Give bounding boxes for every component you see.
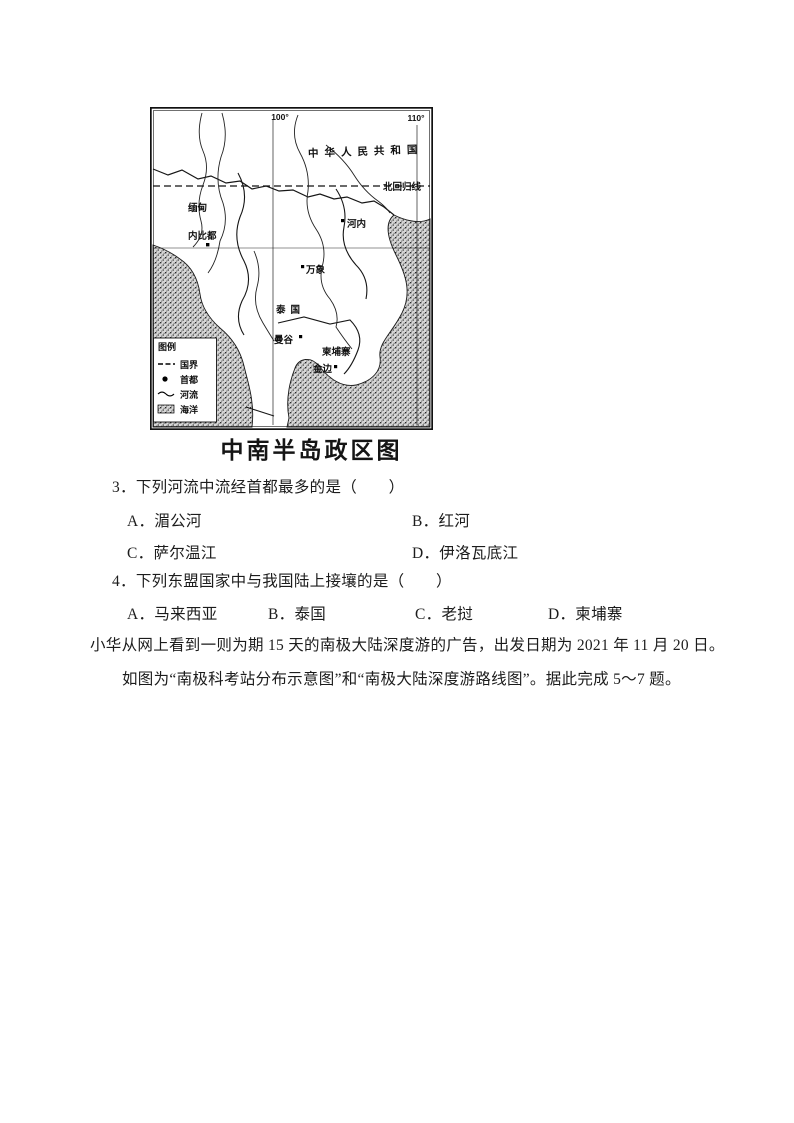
map-legend: 图例 国界 首都 河流 海洋 — [154, 338, 217, 422]
legend-sea-label: 海洋 — [180, 404, 198, 415]
naypyidaw-label: 内比都 — [188, 230, 217, 242]
question-3-option-a: A．湄公河 — [127, 513, 202, 531]
passage-line-2: 如图为“南极科考站分布示意图”和“南极大陆深度游路线图”。据此完成 5～7 题。 — [122, 671, 681, 689]
question-4-option-a: A．马来西亚 — [127, 606, 218, 624]
document-page: 100° 110° 中华人民共和国 北回归线 缅甸 泰国 柬埔寨 内比都 河内 … — [0, 0, 794, 1123]
thailand-label: 泰国 — [275, 304, 305, 316]
hanoi-label: 河内 — [347, 218, 366, 230]
question-4-option-c: C．老挝 — [415, 606, 473, 624]
hanoi-dot — [341, 219, 344, 222]
legend-title: 图例 — [158, 341, 176, 352]
vientiane-label: 万象 — [305, 264, 326, 276]
legend-river-label: 河流 — [180, 389, 198, 400]
bangkok-dot — [299, 335, 302, 338]
legend-capital-symbol — [162, 376, 167, 381]
legend-boundary-label: 国界 — [180, 360, 198, 370]
lon-110-label: 110° — [407, 113, 425, 123]
phnom-penh-label: 金边 — [312, 363, 333, 375]
question-3-option-d: D．伊洛瓦底江 — [412, 545, 518, 563]
passage-line-1: 小华从网上看到一则为期 15 天的南极大陆深度游的广告，出发日期为 2021 年… — [90, 637, 725, 655]
vientiane-dot — [301, 265, 304, 268]
question-4-option-d: D．柬埔寨 — [548, 606, 623, 624]
tropic-of-cancer-label: 北回归线 — [383, 181, 422, 193]
indochina-map: 100° 110° 中华人民共和国 北回归线 缅甸 泰国 柬埔寨 内比都 河内 … — [150, 107, 433, 430]
legend-sea-symbol — [158, 405, 174, 413]
naypyidaw-dot — [206, 243, 209, 246]
cambodia-label: 柬埔寨 — [321, 346, 351, 358]
question-4-option-b: B．泰国 — [268, 606, 326, 624]
question-3-stem: 3．下列河流中流经首都最多的是（ ） — [112, 479, 404, 497]
question-3-option-c: C．萨尔温江 — [127, 545, 217, 563]
legend-capital-label: 首都 — [180, 374, 198, 385]
phnom-penh-dot — [334, 365, 337, 368]
myanmar-label: 缅甸 — [188, 202, 207, 214]
map-caption: 中南半岛政区图 — [170, 431, 453, 465]
bangkok-label: 曼谷 — [274, 334, 294, 346]
lon-100-label: 100° — [271, 112, 289, 122]
question-3-option-b: B．红河 — [412, 513, 470, 531]
question-4-stem: 4．下列东盟国家中与我国陆上接壤的是（ ） — [112, 573, 452, 591]
